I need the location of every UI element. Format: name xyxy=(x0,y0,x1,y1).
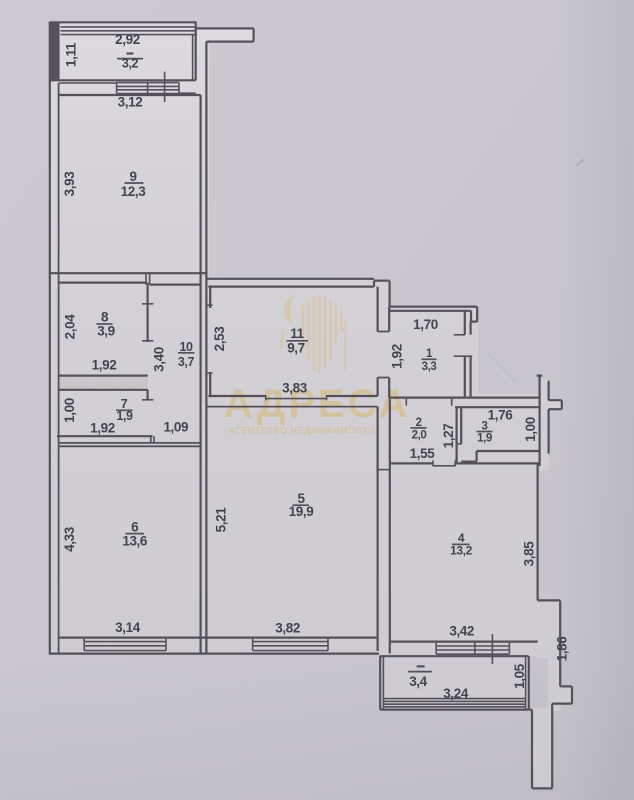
svg-text:2: 2 xyxy=(416,417,422,429)
svg-text:1,05: 1,05 xyxy=(512,663,527,689)
svg-text:3,85: 3,85 xyxy=(522,541,537,567)
svg-text:3,3: 3,3 xyxy=(422,361,437,373)
svg-text:3,14: 3,14 xyxy=(115,620,141,635)
svg-text:2,0: 2,0 xyxy=(412,430,427,442)
svg-text:1,09: 1,09 xyxy=(163,420,188,435)
svg-text:3,42: 3,42 xyxy=(449,624,474,639)
svg-text:3: 3 xyxy=(482,421,488,433)
svg-text:2,92: 2,92 xyxy=(115,32,140,47)
svg-text:АДРЕСА: АДРЕСА xyxy=(223,382,410,426)
svg-text:8: 8 xyxy=(101,310,109,325)
svg-text:1,92: 1,92 xyxy=(90,421,115,436)
svg-text:19,9: 19,9 xyxy=(289,504,314,519)
svg-text:АГЕНТСТВО НЕДВИЖИМОСТИ: АГЕНТСТВО НЕДВИЖИМОСТИ xyxy=(229,426,375,436)
svg-text:9,7: 9,7 xyxy=(287,341,305,356)
svg-text:9: 9 xyxy=(129,169,136,184)
svg-text:5,21: 5,21 xyxy=(214,507,229,533)
svg-text:1,00: 1,00 xyxy=(523,417,538,442)
svg-text:1,76: 1,76 xyxy=(488,408,514,423)
svg-text:11: 11 xyxy=(290,326,304,341)
svg-text:1,70: 1,70 xyxy=(413,317,438,332)
svg-text:13,6: 13,6 xyxy=(122,534,148,549)
svg-text:1,55: 1,55 xyxy=(410,446,436,461)
svg-text:6: 6 xyxy=(131,520,139,535)
svg-text:1,11: 1,11 xyxy=(64,42,79,67)
svg-text:4,33: 4,33 xyxy=(62,526,77,552)
svg-text:12,3: 12,3 xyxy=(121,184,147,199)
svg-text:1,27: 1,27 xyxy=(441,424,456,449)
svg-text:3,2: 3,2 xyxy=(122,57,139,71)
svg-text:1,00: 1,00 xyxy=(62,398,77,423)
svg-text:3,12: 3,12 xyxy=(118,95,143,110)
svg-text:1,9: 1,9 xyxy=(116,409,133,423)
svg-text:10: 10 xyxy=(179,340,193,354)
svg-text:3,82: 3,82 xyxy=(275,621,300,636)
svg-text:13,2: 13,2 xyxy=(450,544,472,558)
svg-text:3,93: 3,93 xyxy=(62,171,77,197)
svg-text:1,9: 1,9 xyxy=(477,433,492,445)
svg-text:3,83: 3,83 xyxy=(282,381,308,396)
svg-text:3,9: 3,9 xyxy=(97,324,115,339)
svg-text:2,04: 2,04 xyxy=(63,314,78,340)
svg-text:3,40: 3,40 xyxy=(152,347,167,372)
svg-text:1: 1 xyxy=(426,348,433,360)
svg-text:3,7: 3,7 xyxy=(178,355,195,369)
svg-text:АГЕНТСТВО НЕДВИ: АГЕНТСТВО НЕДВИ xyxy=(57,380,148,389)
svg-text:2,53: 2,53 xyxy=(212,326,227,352)
svg-text:1,92: 1,92 xyxy=(92,358,117,373)
svg-text:1,86: 1,86 xyxy=(555,636,570,662)
svg-text:3,24: 3,24 xyxy=(443,686,469,701)
svg-text:3,4: 3,4 xyxy=(409,674,427,689)
svg-text:1,92: 1,92 xyxy=(390,344,405,369)
